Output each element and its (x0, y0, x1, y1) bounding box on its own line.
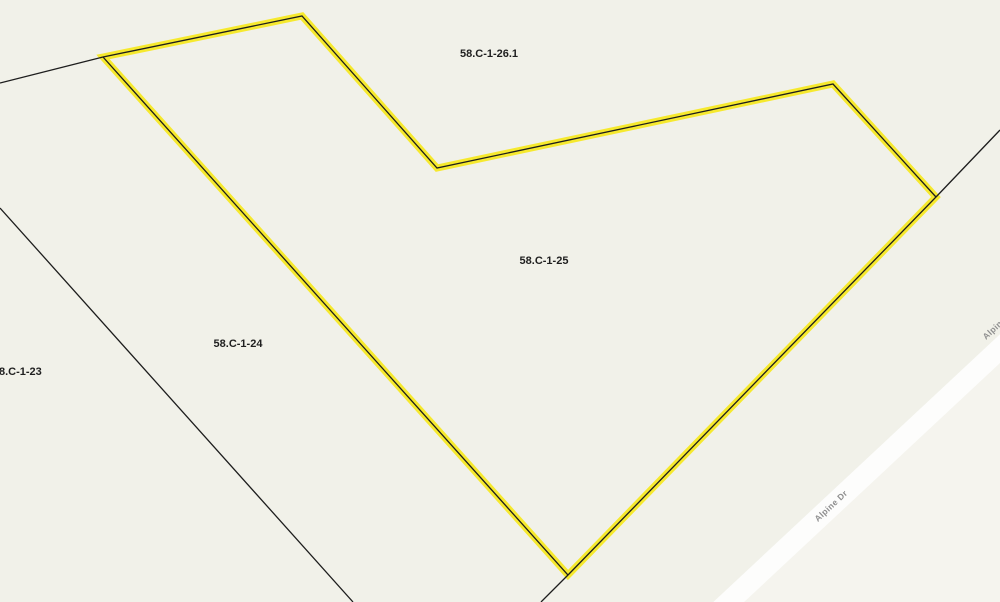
parcel-label-58c-1-25: 58.C-1-25 (520, 255, 569, 267)
parcel-label-58c-1-24: 58.C-1-24 (214, 338, 264, 350)
parcel-label-58c-1-26-1: 58.C-1-26.1 (460, 48, 518, 60)
map-canvas[interactable]: 58.C-1-26.1 58.C-1-25 58.C-1-24 8.C-1-23… (0, 0, 1000, 602)
parcel-label-58c-1-23: 8.C-1-23 (0, 366, 42, 378)
parcel-map-viewport[interactable]: 58.C-1-26.1 58.C-1-25 58.C-1-24 8.C-1-23… (0, 0, 1000, 602)
